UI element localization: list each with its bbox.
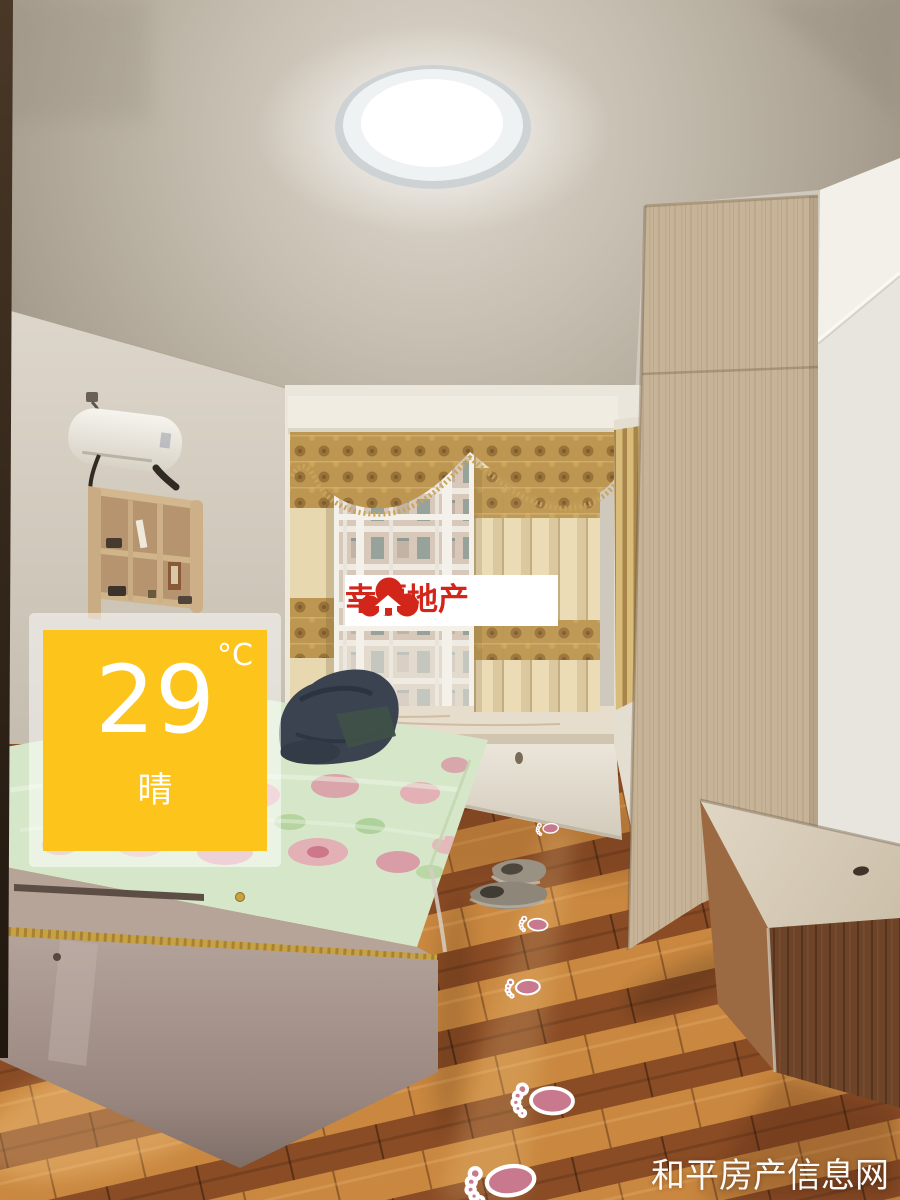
weather-condition: 晴 (43, 762, 267, 813)
temperature-value: 29 (43, 652, 267, 751)
listing-photo: °C 29 晴 幸福地产 和平房产信息网 (0, 0, 900, 1200)
weather-widget: °C 29 晴 (29, 613, 281, 867)
drawer-knob (53, 953, 61, 961)
weather-panel: °C 29 晴 (43, 630, 267, 851)
red-clouds-house-logo-icon (347, 575, 431, 623)
agency-watermark: 幸福地产 (345, 575, 558, 626)
wall-socket (515, 752, 523, 764)
ceiling-lamp (255, 24, 611, 236)
site-watermark: 和平房产信息网 (651, 1148, 889, 1197)
right-wall (818, 274, 900, 852)
mattress-knob (236, 893, 245, 902)
